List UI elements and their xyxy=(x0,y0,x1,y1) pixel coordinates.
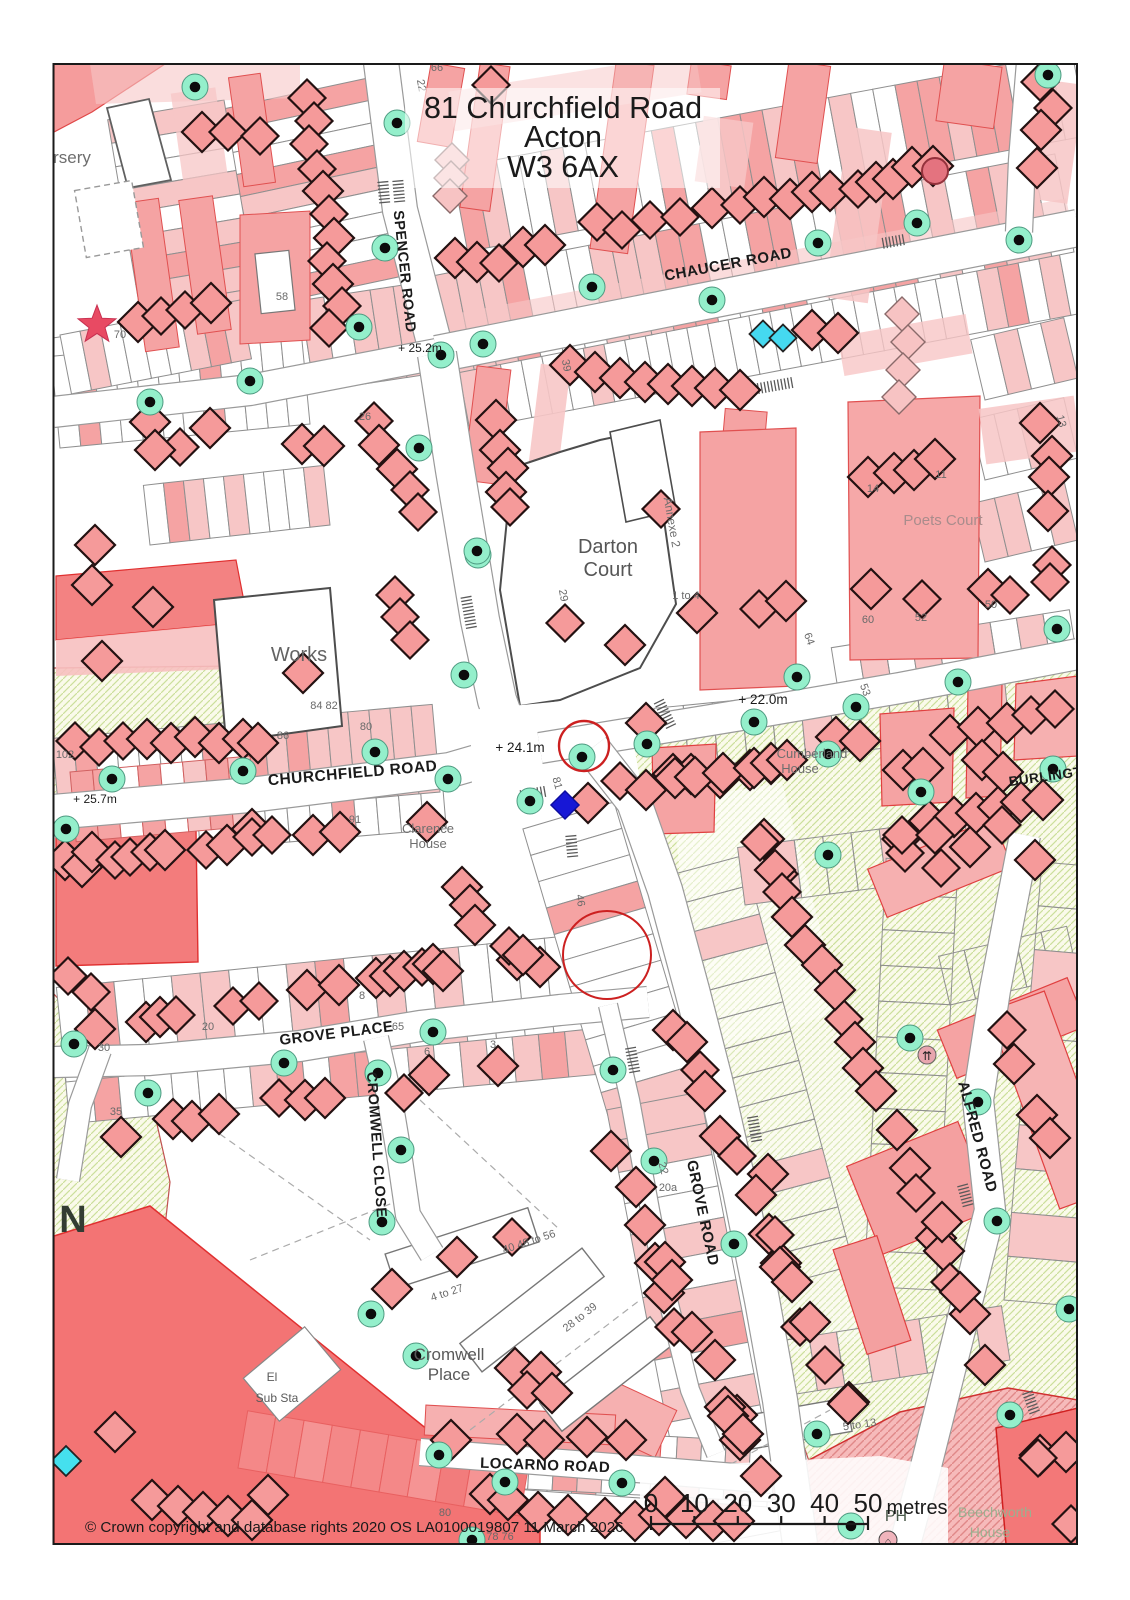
svg-text:8: 8 xyxy=(359,990,365,1002)
svg-text:Cumberland: Cumberland xyxy=(777,746,848,761)
svg-text:Court: Court xyxy=(584,559,633,581)
svg-text:+ 25.7m: + 25.7m xyxy=(73,792,117,806)
svg-text:39: 39 xyxy=(559,358,573,372)
svg-text:Place: Place xyxy=(428,1365,471,1384)
svg-text:84 82: 84 82 xyxy=(310,700,338,712)
svg-text:86: 86 xyxy=(277,730,289,742)
svg-text:14: 14 xyxy=(867,483,879,495)
svg-text:29: 29 xyxy=(556,588,570,602)
svg-text:House: House xyxy=(781,761,819,776)
svg-text:+ 25.2m: + 25.2m xyxy=(398,341,442,355)
svg-text:35: 35 xyxy=(110,1106,122,1118)
svg-text:50: 50 xyxy=(854,1488,883,1518)
svg-text:60: 60 xyxy=(862,614,874,626)
svg-text:Sub Sta: Sub Sta xyxy=(256,1391,299,1405)
svg-text:Clarence: Clarence xyxy=(402,821,454,836)
svg-text:50: 50 xyxy=(985,599,997,611)
svg-text:Beechworth: Beechworth xyxy=(958,1504,1032,1520)
svg-text:Poets Court: Poets Court xyxy=(903,512,983,529)
svg-text:3: 3 xyxy=(490,1039,496,1051)
svg-text:+ 24.1m: + 24.1m xyxy=(495,740,544,755)
svg-text:rsery: rsery xyxy=(53,148,91,167)
svg-text:26: 26 xyxy=(359,411,371,423)
svg-text:Acton: Acton xyxy=(524,120,602,154)
svg-text:58: 58 xyxy=(276,291,288,303)
svg-text:30: 30 xyxy=(767,1488,796,1518)
svg-text:10: 10 xyxy=(680,1488,709,1518)
svg-text:65: 65 xyxy=(392,1021,404,1033)
svg-text:⇈: ⇈ xyxy=(922,1049,932,1063)
svg-text:+ 22.0m: + 22.0m xyxy=(738,692,787,707)
svg-text:Cromwell: Cromwell xyxy=(414,1345,485,1364)
svg-text:Works: Works xyxy=(271,644,327,666)
svg-text:46: 46 xyxy=(573,893,587,907)
svg-text:52: 52 xyxy=(915,612,927,624)
svg-text:11: 11 xyxy=(935,469,946,481)
svg-text:80: 80 xyxy=(360,721,372,733)
svg-text:30: 30 xyxy=(98,1042,110,1054)
svg-text:El: El xyxy=(267,1370,278,1384)
svg-text:0: 0 xyxy=(644,1488,658,1518)
svg-text:20: 20 xyxy=(202,1021,214,1033)
svg-text:metres: metres xyxy=(886,1497,947,1519)
svg-text:102: 102 xyxy=(56,749,74,761)
svg-text:House: House xyxy=(970,1524,1011,1540)
svg-text:40: 40 xyxy=(810,1488,839,1518)
svg-text:House: House xyxy=(409,836,447,851)
svg-text:© Crown copyright and database: © Crown copyright and database rights 20… xyxy=(85,1519,624,1536)
svg-text:W3 6AX: W3 6AX xyxy=(507,150,619,184)
svg-text:91: 91 xyxy=(349,814,361,826)
svg-text:Darton: Darton xyxy=(578,536,638,558)
svg-text:N: N xyxy=(59,1199,86,1241)
svg-text:20: 20 xyxy=(723,1488,752,1518)
svg-text:1 to 4: 1 to 4 xyxy=(672,590,700,602)
svg-text:80: 80 xyxy=(439,1507,451,1519)
svg-text:70: 70 xyxy=(114,329,126,341)
svg-text:20a: 20a xyxy=(659,1182,678,1194)
svg-text:6: 6 xyxy=(424,1046,430,1058)
